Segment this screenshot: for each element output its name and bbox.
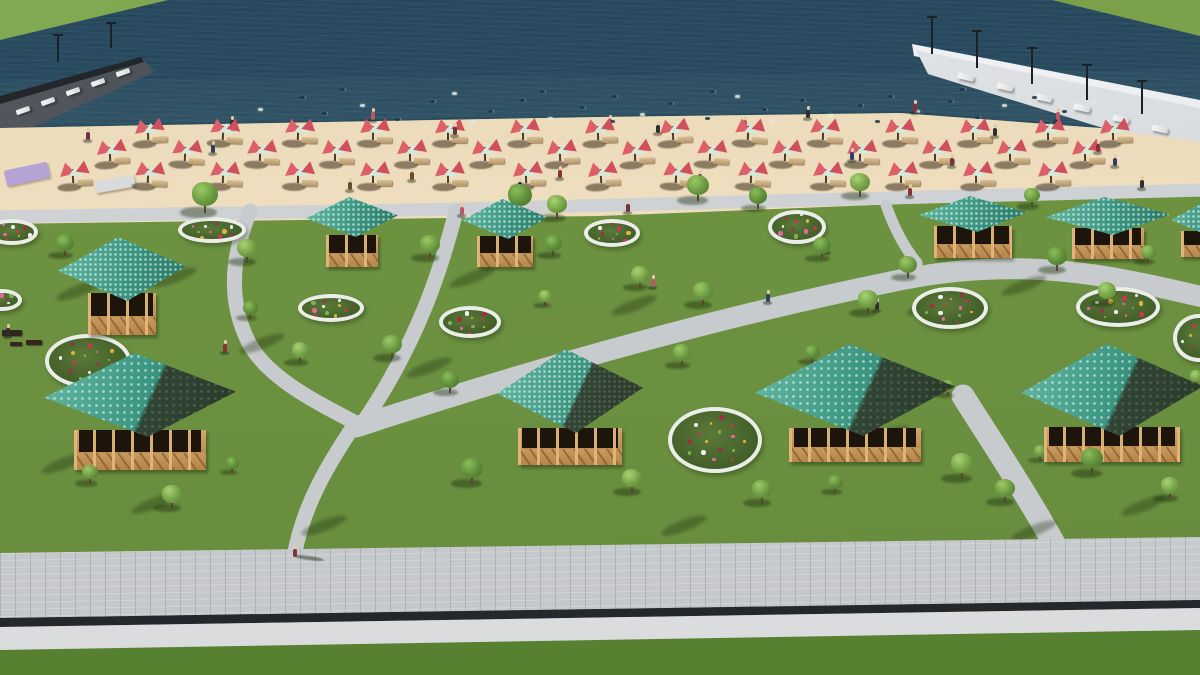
person (648, 275, 658, 289)
tree-shadow (623, 284, 648, 291)
beach-umbrella (810, 161, 847, 196)
tree (539, 290, 552, 302)
tree (850, 173, 870, 191)
umbrella-canopy (338, 138, 354, 152)
beach-lounger (980, 180, 995, 186)
gazebo-roof (58, 237, 186, 301)
gazebo-roof-shade (497, 349, 643, 433)
swimmer (360, 104, 365, 107)
gazebo-roof (462, 199, 548, 239)
beach-lounger (527, 137, 542, 143)
swimmer (322, 112, 327, 115)
beach-umbrella (1032, 118, 1069, 153)
tree-shadow (433, 389, 458, 396)
tree-shadow (821, 489, 842, 495)
umbrella-canopy (376, 160, 392, 174)
umbrella-canopy (638, 138, 653, 151)
tree (687, 175, 709, 195)
swimmer (452, 92, 457, 95)
swimmer (960, 88, 965, 91)
beach-umbrella (432, 161, 469, 196)
umbrella-canopy (226, 160, 242, 174)
person-head (657, 121, 661, 125)
umbrella-canopy (754, 160, 770, 174)
umbrella-canopy (676, 117, 691, 130)
person-head (1057, 108, 1061, 112)
umbrella-canopy (376, 117, 392, 131)
tree (1047, 247, 1067, 265)
tree-shadow (1134, 259, 1155, 265)
person-body (410, 172, 414, 180)
person-head (1097, 140, 1101, 144)
beach-lounger (189, 158, 204, 165)
umbrella-canopy (1051, 117, 1067, 131)
person-body (766, 294, 770, 302)
gazebo-roof (755, 344, 955, 436)
person-body (293, 549, 297, 557)
tree-shadow (228, 258, 256, 266)
tree-shadow (1038, 266, 1066, 274)
tree (162, 485, 182, 503)
tree (673, 344, 691, 361)
umbrella-canopy (1013, 138, 1029, 152)
beach-umbrella (768, 138, 805, 173)
tree-shadow (1017, 203, 1039, 209)
person-body (993, 128, 997, 136)
beach-umbrella (281, 117, 318, 152)
gazebo-body (326, 235, 378, 267)
person (407, 168, 417, 182)
person (763, 290, 773, 304)
tree (382, 335, 402, 353)
gazebo-posts (789, 428, 921, 462)
person-head (914, 100, 918, 104)
person-head (519, 178, 523, 182)
person (3, 324, 13, 338)
scene-render (0, 0, 1200, 675)
beach-lounger (77, 179, 92, 186)
swimmer (948, 100, 953, 103)
umbrella-canopy (263, 138, 279, 152)
beach-lounger (152, 180, 167, 187)
tree (622, 469, 642, 487)
beach-lounger (602, 136, 617, 143)
tree (237, 239, 257, 257)
beach-lounger (1055, 179, 1070, 186)
beach-umbrella (507, 118, 544, 153)
umbrella-canopy (751, 117, 767, 132)
person-body (850, 152, 854, 160)
swimmer (395, 118, 400, 121)
gazebo-body (74, 430, 206, 470)
tree-shadow (373, 354, 401, 362)
gazebo-roof (1171, 204, 1200, 234)
swimmer (762, 108, 767, 111)
umbrella-canopy (938, 138, 954, 152)
beach-lounger (564, 157, 579, 164)
gazebo-roof (1046, 197, 1171, 235)
gazebo-body (88, 293, 156, 335)
beach-lounger (639, 157, 654, 164)
beach-lounger (227, 180, 242, 187)
tree (951, 453, 973, 473)
person-body (950, 158, 954, 166)
beach-lounger (755, 180, 770, 187)
tree-shadow (665, 362, 690, 369)
person (555, 166, 565, 180)
person (1110, 154, 1120, 168)
gazebo-roof-shade (755, 344, 955, 436)
umbrella-canopy (301, 117, 317, 131)
swimmer (770, 120, 775, 123)
person-head (652, 275, 656, 279)
beach-umbrella (618, 138, 656, 174)
person-shadow (294, 554, 324, 562)
beach-lounger (414, 158, 429, 164)
tree-shadow (741, 205, 766, 212)
umbrella-canopy (188, 138, 204, 153)
person-head (627, 200, 631, 204)
tree-shadow (1153, 495, 1178, 502)
person (905, 184, 915, 198)
tree (828, 475, 843, 489)
person-head (1141, 176, 1145, 180)
umbrella-canopy (226, 117, 242, 132)
person-body (86, 132, 90, 140)
beach-lounger (264, 158, 279, 165)
umbrella-canopy (413, 138, 429, 152)
person (623, 200, 633, 214)
beach-umbrella (357, 118, 394, 153)
beach-umbrella (693, 138, 731, 174)
umbrella-canopy (901, 117, 917, 131)
tree (1141, 245, 1156, 259)
tree-shadow (891, 274, 916, 281)
person (947, 154, 957, 168)
tree (749, 187, 767, 204)
tree-shadow (153, 504, 181, 512)
umbrella-canopy (151, 160, 167, 175)
person-head (951, 154, 955, 158)
person (290, 545, 300, 559)
beach-lounger (152, 136, 167, 143)
tree-shadow (220, 470, 238, 475)
beach-umbrella (469, 139, 506, 174)
gazebo-roof (1021, 344, 1200, 436)
person (345, 178, 355, 192)
tree (1081, 448, 1103, 468)
swimmer (858, 104, 863, 107)
beach-lounger (789, 158, 804, 165)
tree-shadow (75, 480, 97, 486)
tree-shadow (236, 315, 257, 321)
person (450, 123, 460, 137)
person-head (909, 184, 913, 188)
swimmer (520, 99, 525, 102)
umbrella-canopy (679, 160, 695, 175)
umbrella-canopy (604, 160, 619, 173)
tree (899, 256, 917, 273)
beach-lounger (902, 137, 917, 143)
tree-shadow (451, 479, 482, 488)
tree-shadow (684, 301, 712, 309)
beach-lounger (714, 158, 729, 165)
swimmer (735, 95, 740, 98)
person (83, 128, 93, 142)
swimmer (875, 120, 880, 123)
beach-lounger (377, 180, 392, 186)
umbrella-canopy (826, 117, 842, 131)
tree (1024, 188, 1040, 203)
umbrella-canopy (529, 160, 544, 174)
person-body (656, 125, 660, 133)
beach-lounger (302, 137, 317, 144)
umbrella-canopy (1054, 160, 1069, 174)
gazebo-roof-shade (44, 353, 236, 437)
beach-lounger (227, 137, 242, 144)
swimmer (1032, 96, 1037, 99)
beach-lounger (1089, 157, 1104, 164)
beach-umbrella (93, 138, 131, 174)
swimmer (705, 117, 710, 120)
person-body (1113, 158, 1117, 166)
person-body (1096, 144, 1100, 152)
beach-umbrella (357, 161, 393, 195)
gazebo-roof-shade (1021, 344, 1200, 436)
swimmer (1002, 104, 1007, 107)
tree-shadow (1071, 469, 1102, 478)
person-body (453, 127, 457, 135)
tree (226, 457, 239, 469)
tree (995, 479, 1015, 497)
gazebo-posts (74, 430, 206, 470)
person-body (6, 328, 10, 336)
person-body (1140, 180, 1144, 188)
beach-umbrella (957, 118, 993, 152)
umbrella-canopy (601, 117, 616, 131)
beach-lounger (605, 179, 620, 186)
person-head (349, 178, 353, 182)
person (208, 141, 218, 155)
umbrella-canopy (563, 138, 578, 152)
tree (545, 235, 562, 251)
tree (805, 345, 820, 359)
umbrella-canopy (76, 160, 91, 173)
swimmer (430, 100, 435, 103)
tree (56, 234, 74, 251)
umbrella-canopy (863, 138, 879, 152)
beach-lounger (302, 180, 317, 186)
beach-umbrella (731, 117, 769, 153)
person (457, 203, 467, 217)
swimmer (1092, 100, 1097, 103)
beach-lounger (1014, 158, 1029, 164)
tree-shadow (537, 252, 561, 259)
umbrella-canopy (301, 160, 317, 174)
beach-umbrella (584, 160, 622, 196)
tree (693, 282, 713, 300)
tree (461, 458, 483, 478)
person-head (767, 290, 771, 294)
umbrella-canopy (829, 160, 845, 174)
swimmer (668, 102, 673, 105)
person (910, 100, 920, 114)
beach-lounger (339, 158, 354, 164)
swimmer (548, 117, 553, 120)
swimmer (258, 108, 263, 111)
tree (858, 290, 878, 308)
gazebo-body (1181, 231, 1200, 257)
tree-shadow (743, 499, 771, 507)
umbrella-canopy (151, 117, 166, 130)
tree (420, 235, 440, 253)
gazebo-body (789, 428, 921, 462)
person-head (1114, 154, 1118, 158)
tree-shadow (941, 474, 972, 483)
gazebo-posts (326, 235, 378, 267)
umbrella-canopy (451, 160, 467, 174)
beach-umbrella (960, 161, 997, 196)
umbrella-canopy (904, 160, 920, 174)
person-head (372, 108, 376, 112)
person-head (454, 123, 458, 127)
tree (441, 371, 459, 388)
tree (1161, 477, 1179, 494)
person (1093, 140, 1103, 154)
tree (243, 301, 258, 315)
person-head (699, 170, 703, 174)
person-head (559, 166, 563, 170)
swimmer (888, 95, 893, 98)
swimmer (612, 95, 617, 98)
swimmer (710, 90, 715, 93)
beach-lounger (830, 180, 845, 186)
gazebo-posts (1181, 231, 1200, 257)
gazebo-posts (934, 226, 1012, 258)
beach-umbrella (168, 138, 206, 174)
beach-lounger (1052, 137, 1067, 143)
person-head (87, 128, 91, 132)
person-body (908, 188, 912, 196)
person (990, 124, 1000, 138)
umbrella-canopy (1116, 117, 1131, 131)
beach-umbrella (885, 161, 921, 195)
tree (1098, 282, 1116, 299)
tree (82, 465, 98, 480)
umbrella-canopy (488, 138, 504, 152)
scene-objects (0, 0, 1200, 675)
beach-umbrella (882, 118, 919, 153)
beach-umbrella (243, 138, 280, 173)
person (847, 148, 857, 162)
person-body (626, 204, 630, 212)
beach-lounger (114, 157, 129, 164)
gazebo-body (934, 226, 1012, 258)
person-body (223, 344, 227, 352)
person (1137, 176, 1147, 190)
person-head (411, 168, 415, 172)
person-head (224, 340, 228, 344)
swimmer (470, 121, 475, 124)
gazebo-posts (518, 428, 622, 465)
tree-shadow (180, 207, 216, 217)
tree-shadow (533, 303, 551, 308)
person-body (558, 170, 562, 178)
beach-lounger (452, 180, 467, 186)
beach-umbrella (131, 117, 169, 153)
person (220, 340, 230, 354)
gazebo-roof (497, 349, 643, 433)
beach-umbrella (282, 161, 319, 196)
person-body (211, 145, 215, 153)
person-head (807, 106, 811, 110)
beach-umbrella (1034, 160, 1071, 195)
person (653, 121, 663, 135)
beach-umbrella (319, 139, 356, 174)
tree-shadow (805, 255, 830, 262)
gazebo-roof (306, 197, 398, 237)
swimmer (580, 106, 585, 109)
tree (813, 237, 831, 254)
tree (192, 182, 218, 206)
person-body (460, 207, 464, 215)
tree-shadow (677, 196, 708, 205)
person-head (294, 545, 298, 549)
tree (292, 342, 309, 358)
beach-umbrella (131, 160, 169, 196)
tree-shadow (48, 252, 73, 259)
swimmer (640, 113, 645, 116)
tree (631, 266, 649, 283)
person-body (651, 279, 655, 287)
swimmer (340, 88, 345, 91)
person-body (913, 104, 917, 112)
person-body (348, 182, 352, 190)
tree-shadow (411, 254, 439, 262)
tree-shadow (284, 359, 308, 366)
beach-umbrella (581, 117, 618, 152)
beach-lounger (752, 137, 767, 144)
beach-lounger (677, 136, 692, 143)
person-head (461, 203, 465, 207)
tree-shadow (841, 192, 869, 200)
beach-umbrella (56, 160, 94, 196)
gazebo-body (477, 236, 533, 267)
gazebo-body (518, 428, 622, 465)
swimmer (800, 99, 805, 102)
beach-lounger (1117, 136, 1132, 143)
swimmer (540, 90, 545, 93)
swimmer (488, 110, 493, 113)
tree-shadow (1090, 300, 1115, 307)
gazebo-roof (44, 353, 236, 437)
gazebo-posts (477, 236, 533, 267)
beach-lounger (377, 137, 392, 143)
tree (547, 195, 567, 213)
swimmer (300, 96, 305, 99)
umbrella-canopy (979, 160, 995, 174)
umbrella-canopy (113, 138, 128, 151)
umbrella-canopy (788, 138, 804, 152)
beach-lounger (530, 179, 545, 186)
tree-shadow (613, 488, 641, 496)
beach-lounger (827, 137, 842, 144)
tree (1190, 370, 1200, 382)
umbrella-canopy (713, 138, 729, 153)
beach-lounger (864, 158, 879, 164)
person-head (212, 141, 216, 145)
umbrella-canopy (526, 117, 542, 131)
